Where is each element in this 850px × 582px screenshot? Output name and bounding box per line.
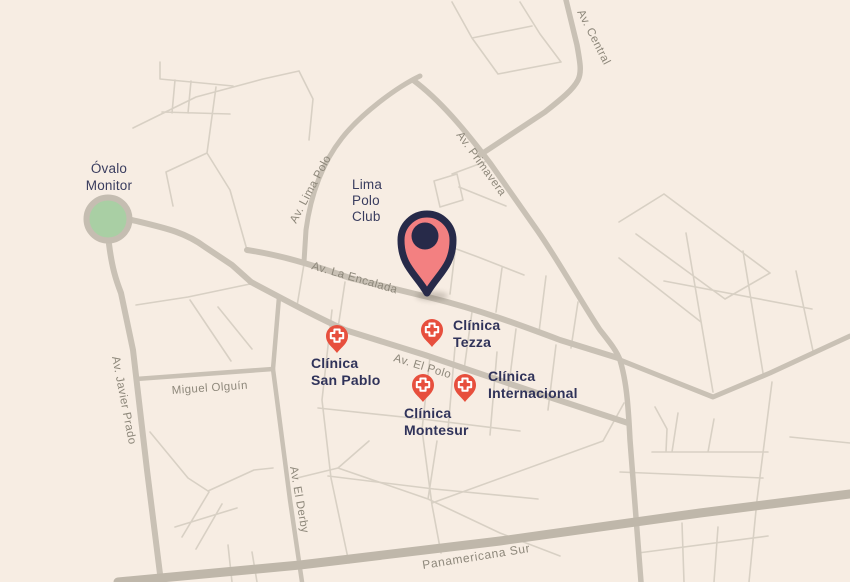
clinic-label-internacional-line2: Internacional: [488, 385, 578, 401]
clinic-label-san-pablo-line2: San Pablo: [311, 372, 380, 388]
place-label-polo-club-line1: Lima: [352, 177, 382, 192]
pin-inner-dot: [412, 223, 439, 250]
clinic-label-internacional-line1: Clínica: [488, 368, 535, 384]
map-canvas: Av. Javier Prado Av. Lima Polo Av. La En…: [0, 0, 850, 582]
clinic-label-tezza-line1: Clínica: [453, 317, 500, 333]
place-label-ovalo-line1: Óvalo: [91, 161, 127, 176]
place-label-ovalo-line2: Monitor: [86, 178, 133, 193]
map-stage: Av. Javier Prado Av. Lima Polo Av. La En…: [0, 0, 850, 582]
place-label-polo-club-line2: Polo: [352, 193, 380, 208]
pin-shadow: [416, 292, 448, 301]
clinic-label-montesur-line1: Clínica: [404, 405, 451, 421]
clinic-label-montesur-line2: Montesur: [404, 422, 469, 438]
clinic-label-san-pablo-line1: Clínica: [311, 355, 358, 371]
clinic-label-tezza-line2: Tezza: [453, 334, 491, 350]
roundabout-ovalo-monitor: [87, 198, 130, 241]
place-label-polo-club-line3: Club: [352, 209, 381, 224]
